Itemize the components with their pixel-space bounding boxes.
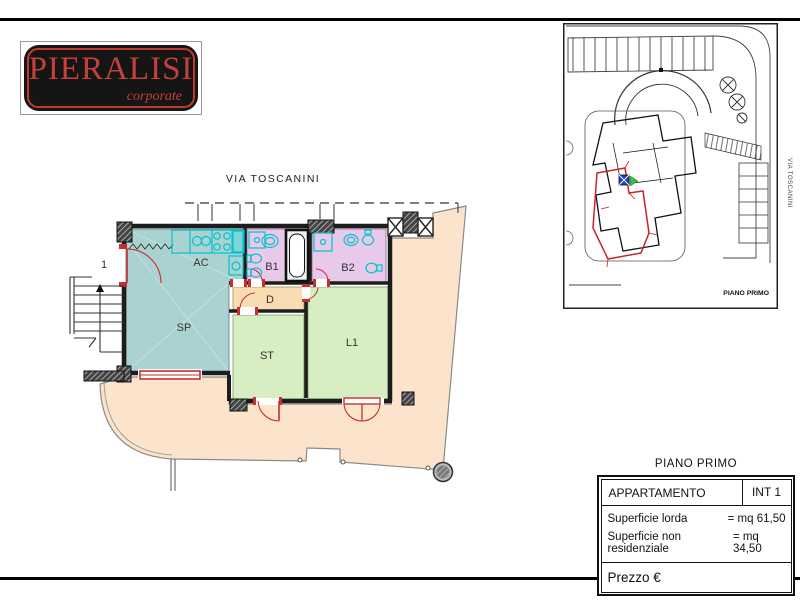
logo-brand-text: PIERALISI xyxy=(24,51,198,88)
info-table: APPARTAMENTO INT 1 Superficie lorda = mq… xyxy=(597,475,795,596)
info-table-title: PIANO PRIMO xyxy=(597,458,795,470)
bathtub xyxy=(286,230,308,281)
label-disimpegno: D xyxy=(266,294,274,306)
table-header-row: APPARTAMENTO INT 1 xyxy=(602,480,791,506)
main-floor-plan: 1 AC B1 B2 D SP ST L1 VIA TOSCANINI xyxy=(40,150,500,510)
surface-nonres-value: = mq 34,50 xyxy=(733,531,786,555)
surface-gross-label: Superficie lorda xyxy=(608,513,688,525)
label-soggiorno: SP xyxy=(177,322,192,334)
apartment-label: APPARTAMENTO xyxy=(602,480,742,505)
label-stairwell: 1 xyxy=(101,259,107,271)
page-border-top xyxy=(0,18,800,21)
surface-rows: Superficie lorda = mq 61,50 Superficie n… xyxy=(602,506,791,563)
logo-background: PIERALISI corporate xyxy=(24,45,198,111)
surface-gross-value: = mq 61,50 xyxy=(728,513,786,525)
staircase xyxy=(70,277,124,352)
inset-floor-label: PIANO PRIMO xyxy=(723,290,769,297)
terrace-column xyxy=(434,463,453,482)
unit-label: INT 1 xyxy=(742,480,791,505)
company-logo: PIERALISI corporate xyxy=(20,41,202,115)
surface-row-gross: Superficie lorda = mq 61,50 xyxy=(608,510,786,528)
site-plan-inset: PIANO PRIMO xyxy=(563,23,778,309)
plan-sheet: PIERALISI corporate xyxy=(0,0,800,600)
surface-nonres-label: Superficie non residenziale xyxy=(608,531,733,555)
label-angolo-cottura: AC xyxy=(193,257,208,269)
inset-border xyxy=(564,24,778,309)
terrace-drain-line xyxy=(171,459,175,491)
logo-tagline-text: corporate xyxy=(127,89,182,105)
surface-row-nonres: Superficie non residenziale = mq 34,50 xyxy=(608,528,786,558)
price-label: Prezzo € xyxy=(602,563,791,592)
label-letto: L1 xyxy=(346,337,358,349)
label-studio: ST xyxy=(260,350,274,362)
label-bagno-2: B2 xyxy=(341,262,354,274)
street-label: VIA TOSCANINI xyxy=(226,173,320,185)
info-table-block: PIANO PRIMO APPARTAMENTO INT 1 Superfici… xyxy=(597,458,795,596)
label-bagno-1: B1 xyxy=(265,261,278,273)
inset-street-label: VIA TOSCANINI xyxy=(786,158,792,208)
